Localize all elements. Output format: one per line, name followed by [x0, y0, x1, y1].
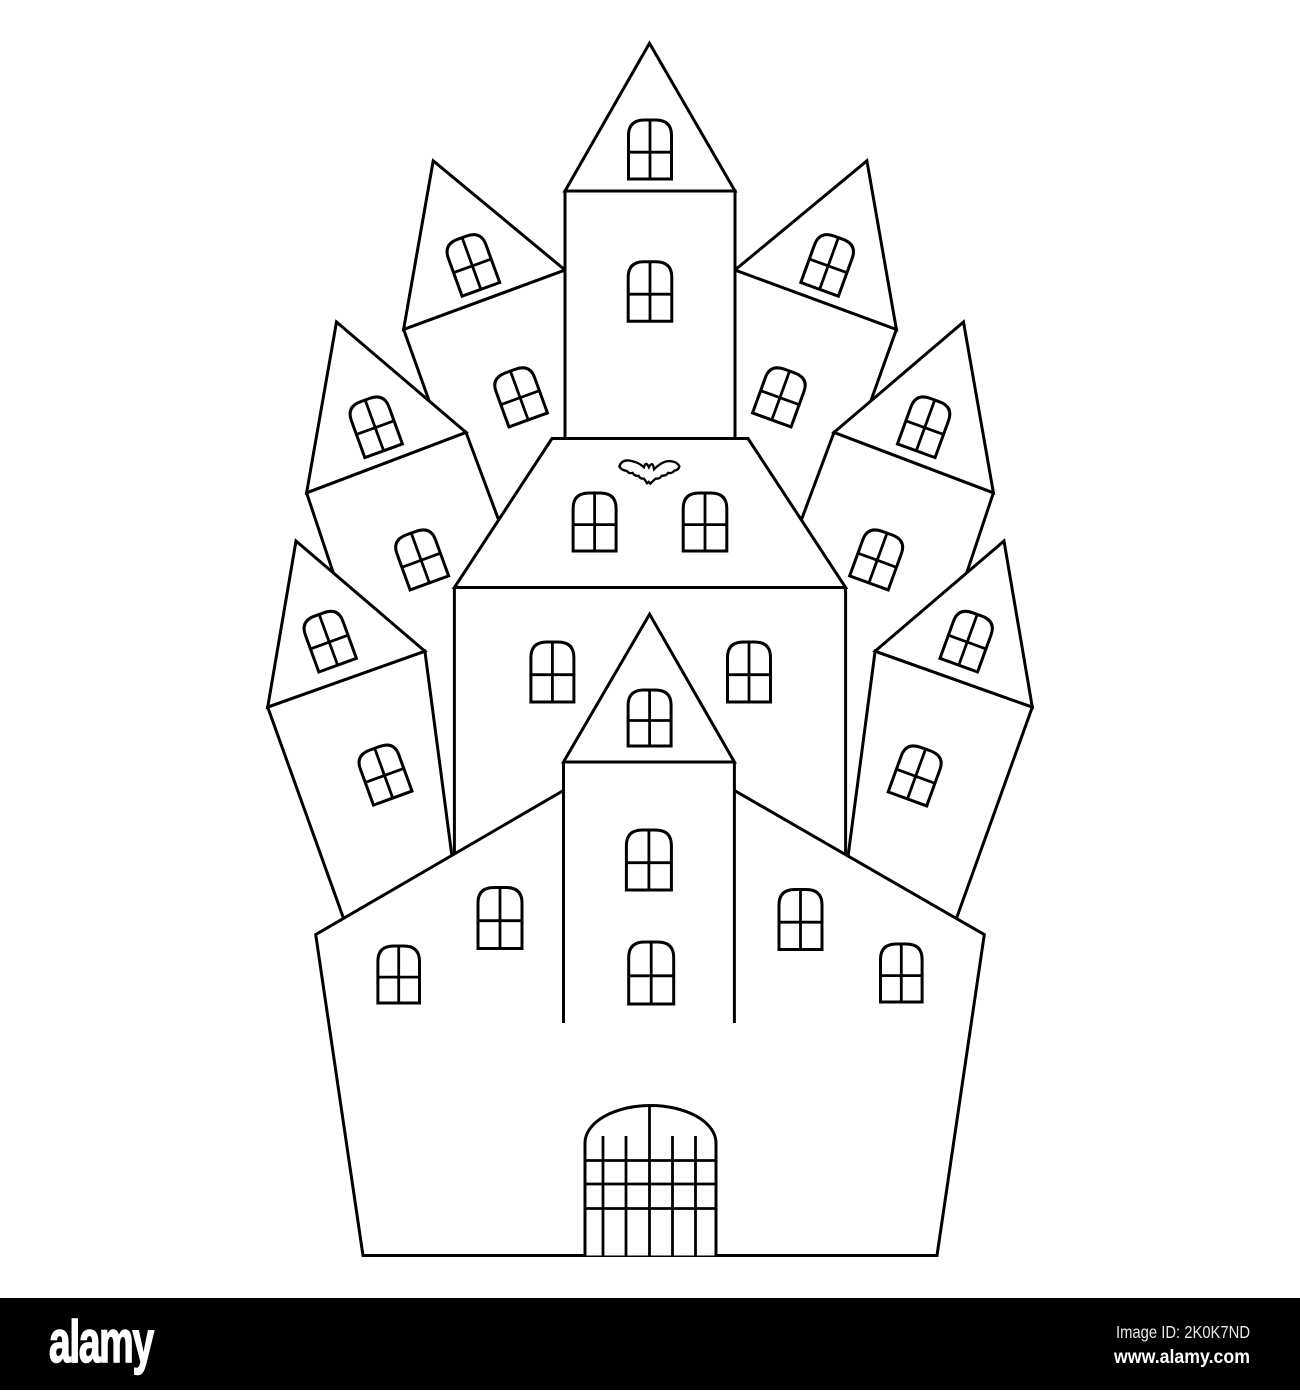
- svg-text:www.alamy.com: www.alamy.com: [1113, 1346, 1250, 1368]
- svg-text:alamy: alamy: [49, 1309, 154, 1375]
- svg-text:Image ID: 2K0K7ND: Image ID: 2K0K7ND: [1116, 1322, 1250, 1342]
